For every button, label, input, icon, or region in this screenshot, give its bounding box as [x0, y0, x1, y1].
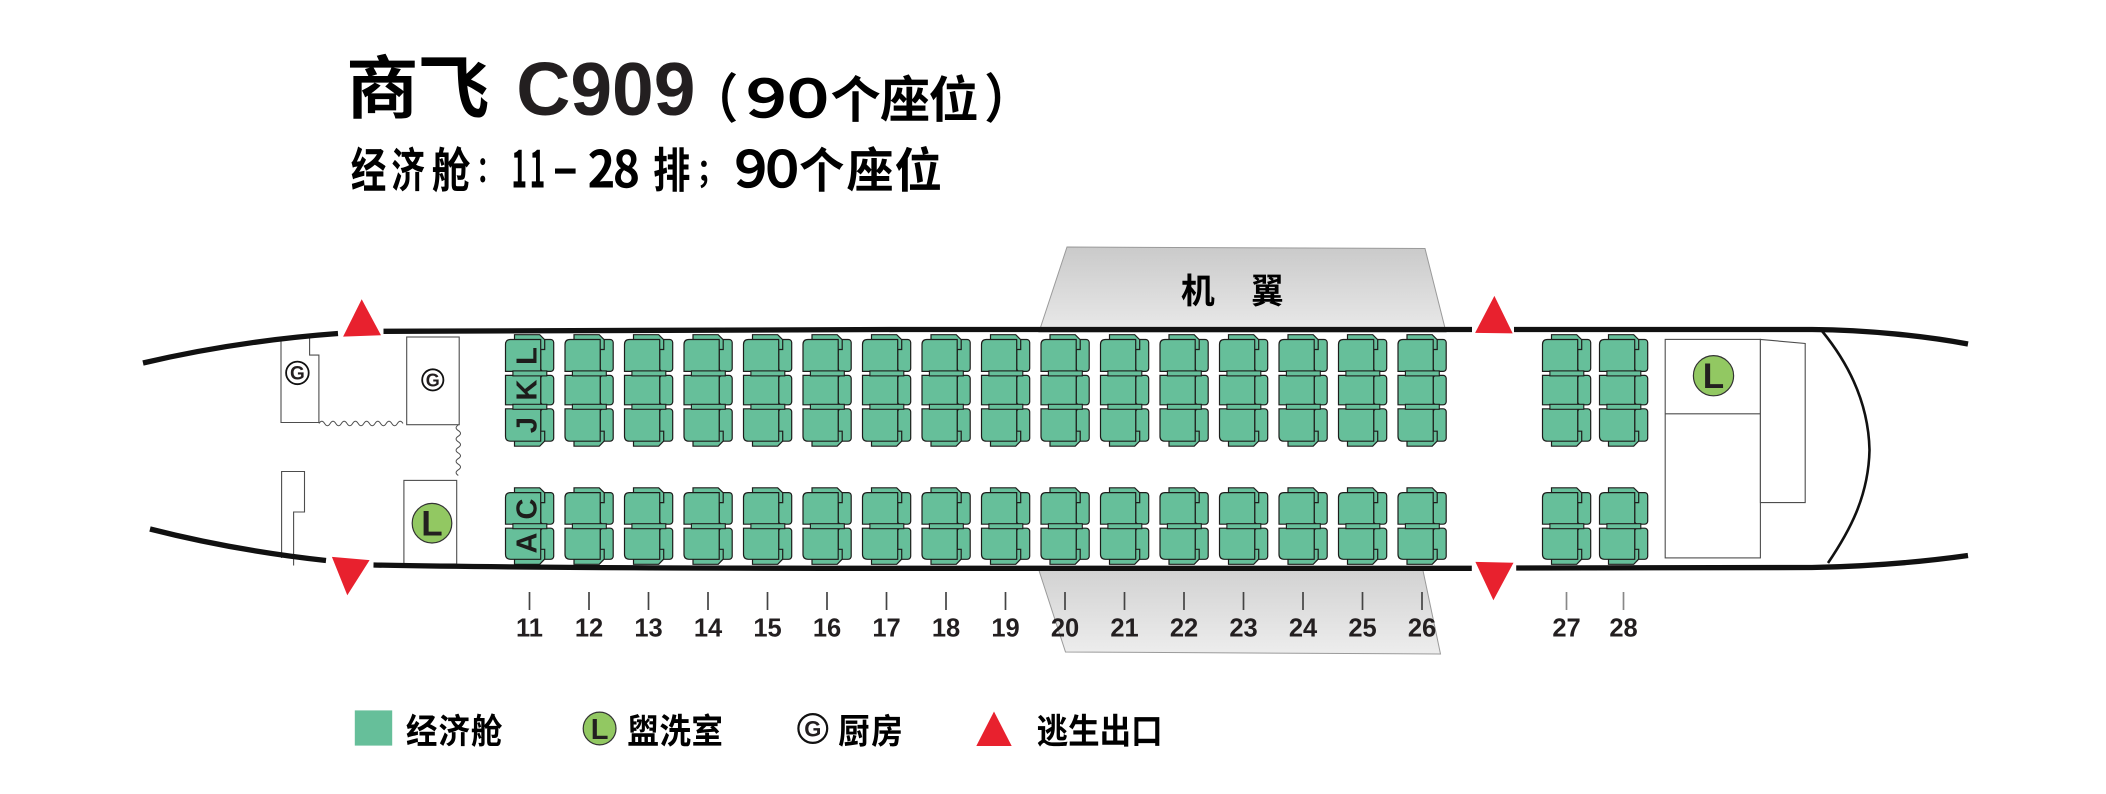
svg-text:A: A	[512, 532, 544, 553]
svg-text:20: 20	[1051, 615, 1079, 643]
svg-text:16: 16	[813, 615, 841, 643]
svg-text:15: 15	[753, 615, 781, 643]
svg-text:L: L	[512, 347, 544, 365]
svg-text:L: L	[591, 714, 609, 746]
svg-text:26: 26	[1408, 615, 1436, 643]
svg-text:23: 23	[1229, 615, 1257, 643]
svg-text:G: G	[290, 364, 305, 385]
svg-text:L: L	[421, 505, 442, 544]
svg-text:18: 18	[932, 615, 960, 643]
svg-text:14: 14	[694, 615, 723, 643]
svg-text:L: L	[1703, 357, 1724, 396]
svg-text:C: C	[512, 498, 544, 519]
svg-text:C909: C909	[516, 47, 695, 131]
svg-text:K: K	[512, 379, 544, 400]
svg-text:G: G	[426, 370, 440, 390]
svg-text:27: 27	[1552, 615, 1580, 643]
svg-text:22: 22	[1170, 615, 1198, 643]
svg-text:21: 21	[1110, 615, 1138, 643]
svg-text:G: G	[804, 717, 821, 742]
svg-text:12: 12	[575, 615, 603, 643]
svg-text:17: 17	[872, 615, 900, 643]
svg-text:13: 13	[634, 615, 662, 643]
svg-text:24: 24	[1289, 615, 1318, 643]
svg-text:28: 28	[1609, 615, 1637, 643]
svg-text:25: 25	[1348, 615, 1376, 643]
svg-text:J: J	[512, 417, 544, 433]
svg-text:19: 19	[991, 615, 1019, 643]
svg-text:11: 11	[516, 615, 543, 643]
